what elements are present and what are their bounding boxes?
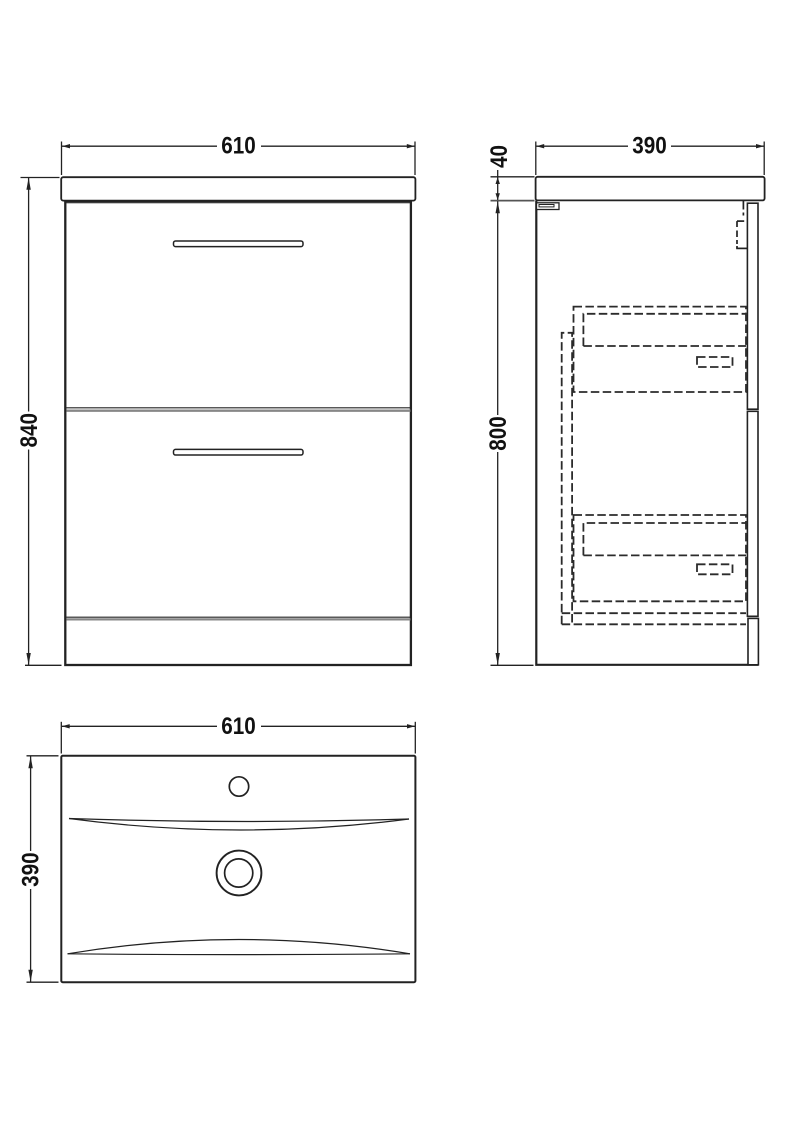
svg-text:610: 610	[221, 133, 256, 160]
svg-text:610: 610	[221, 713, 256, 740]
svg-text:390: 390	[632, 133, 667, 160]
svg-text:390: 390	[18, 852, 45, 887]
svg-text:40: 40	[486, 145, 513, 168]
svg-text:800: 800	[485, 416, 512, 451]
svg-text:840: 840	[16, 413, 43, 448]
